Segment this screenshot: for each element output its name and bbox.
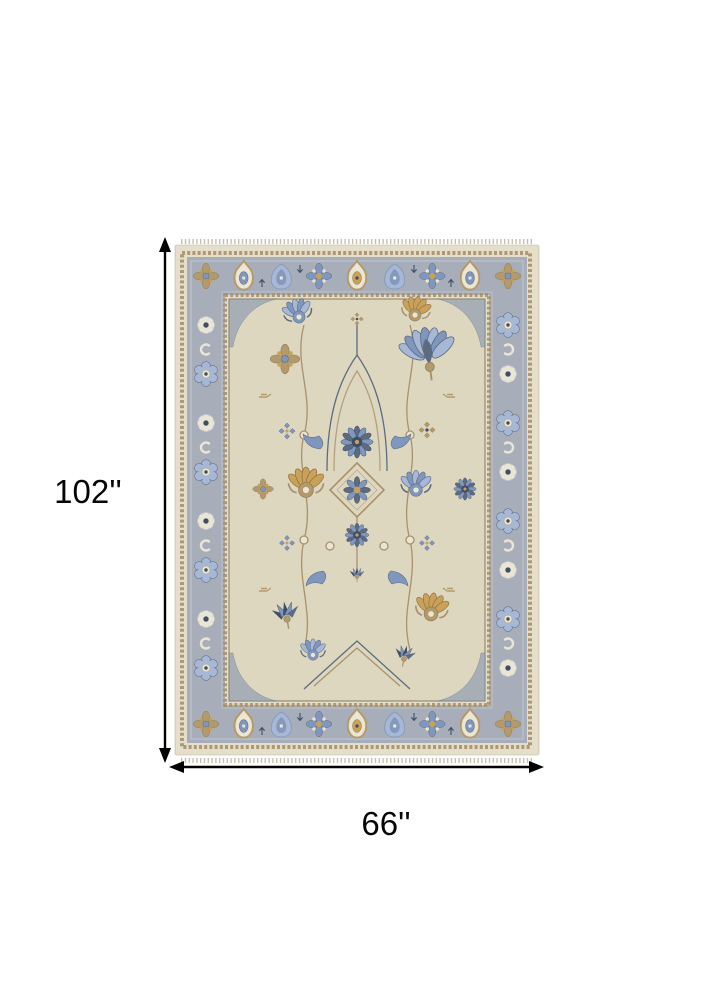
height-label: 102'' bbox=[38, 472, 138, 512]
height-dimension-arrow bbox=[159, 237, 171, 763]
width-label: 66'' bbox=[336, 804, 436, 844]
product-dimension-image: 102'' 66'' bbox=[0, 0, 713, 1000]
rug-image bbox=[173, 239, 541, 763]
